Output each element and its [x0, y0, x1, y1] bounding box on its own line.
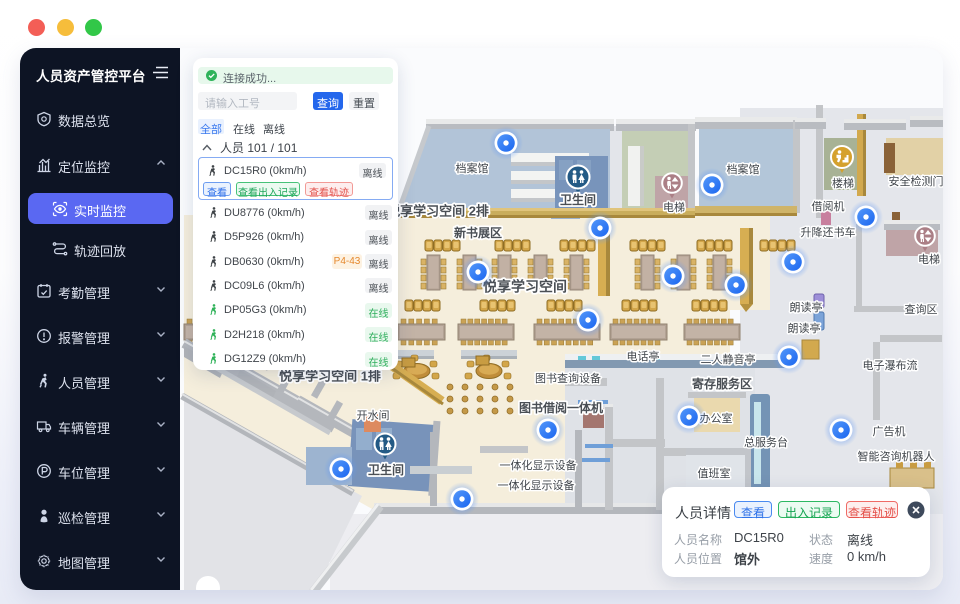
svg-text:楼梯: 楼梯: [832, 176, 854, 190]
svg-text:朗读亭: 朗读亭: [790, 300, 823, 314]
svg-text:一体化显示设备: 一体化显示设备: [498, 478, 575, 492]
svg-text:寄存服务区: 寄存服务区: [692, 376, 752, 391]
svg-text:档案馆: 档案馆: [727, 162, 760, 176]
svg-text:卫生间: 卫生间: [560, 192, 596, 207]
svg-text:值班室: 值班室: [698, 466, 731, 480]
svg-text:二人静音亭: 二人静音亭: [701, 352, 756, 366]
svg-text:朗读亭: 朗读亭: [788, 321, 821, 335]
svg-text:悦享学习空间 2排: 悦享学习空间 2排: [387, 203, 489, 218]
svg-text:悦享学习空间 1排: 悦享学习空间 1排: [279, 368, 381, 383]
svg-text:新书展区: 新书展区: [454, 225, 502, 240]
svg-text:借阅机: 借阅机: [812, 199, 845, 213]
svg-text:图书借阅一体机: 图书借阅一体机: [519, 400, 603, 415]
svg-text:开水间: 开水间: [357, 409, 390, 422]
svg-text:电梯: 电梯: [918, 253, 940, 266]
svg-text:电梯: 电梯: [663, 201, 685, 214]
svg-text:档案馆: 档案馆: [456, 161, 489, 175]
svg-text:智能咨询机器人: 智能咨询机器人: [858, 449, 935, 463]
svg-text:图书查询设备: 图书查询设备: [535, 371, 601, 385]
svg-text:查询区: 查询区: [905, 302, 938, 316]
svg-text:卫生间: 卫生间: [368, 462, 404, 477]
svg-text:一体化显示设备: 一体化显示设备: [500, 458, 577, 472]
svg-text:安全检测门: 安全检测门: [889, 174, 944, 188]
svg-text:电子瀑布流: 电子瀑布流: [863, 358, 918, 372]
svg-text:升降还书车: 升降还书车: [801, 225, 856, 239]
svg-text:悦享学习空间: 悦享学习空间: [483, 279, 567, 295]
svg-text:总服务台: 总服务台: [744, 435, 788, 449]
svg-text:广告机: 广告机: [873, 424, 906, 438]
svg-text:电话亭: 电话亭: [627, 349, 660, 363]
